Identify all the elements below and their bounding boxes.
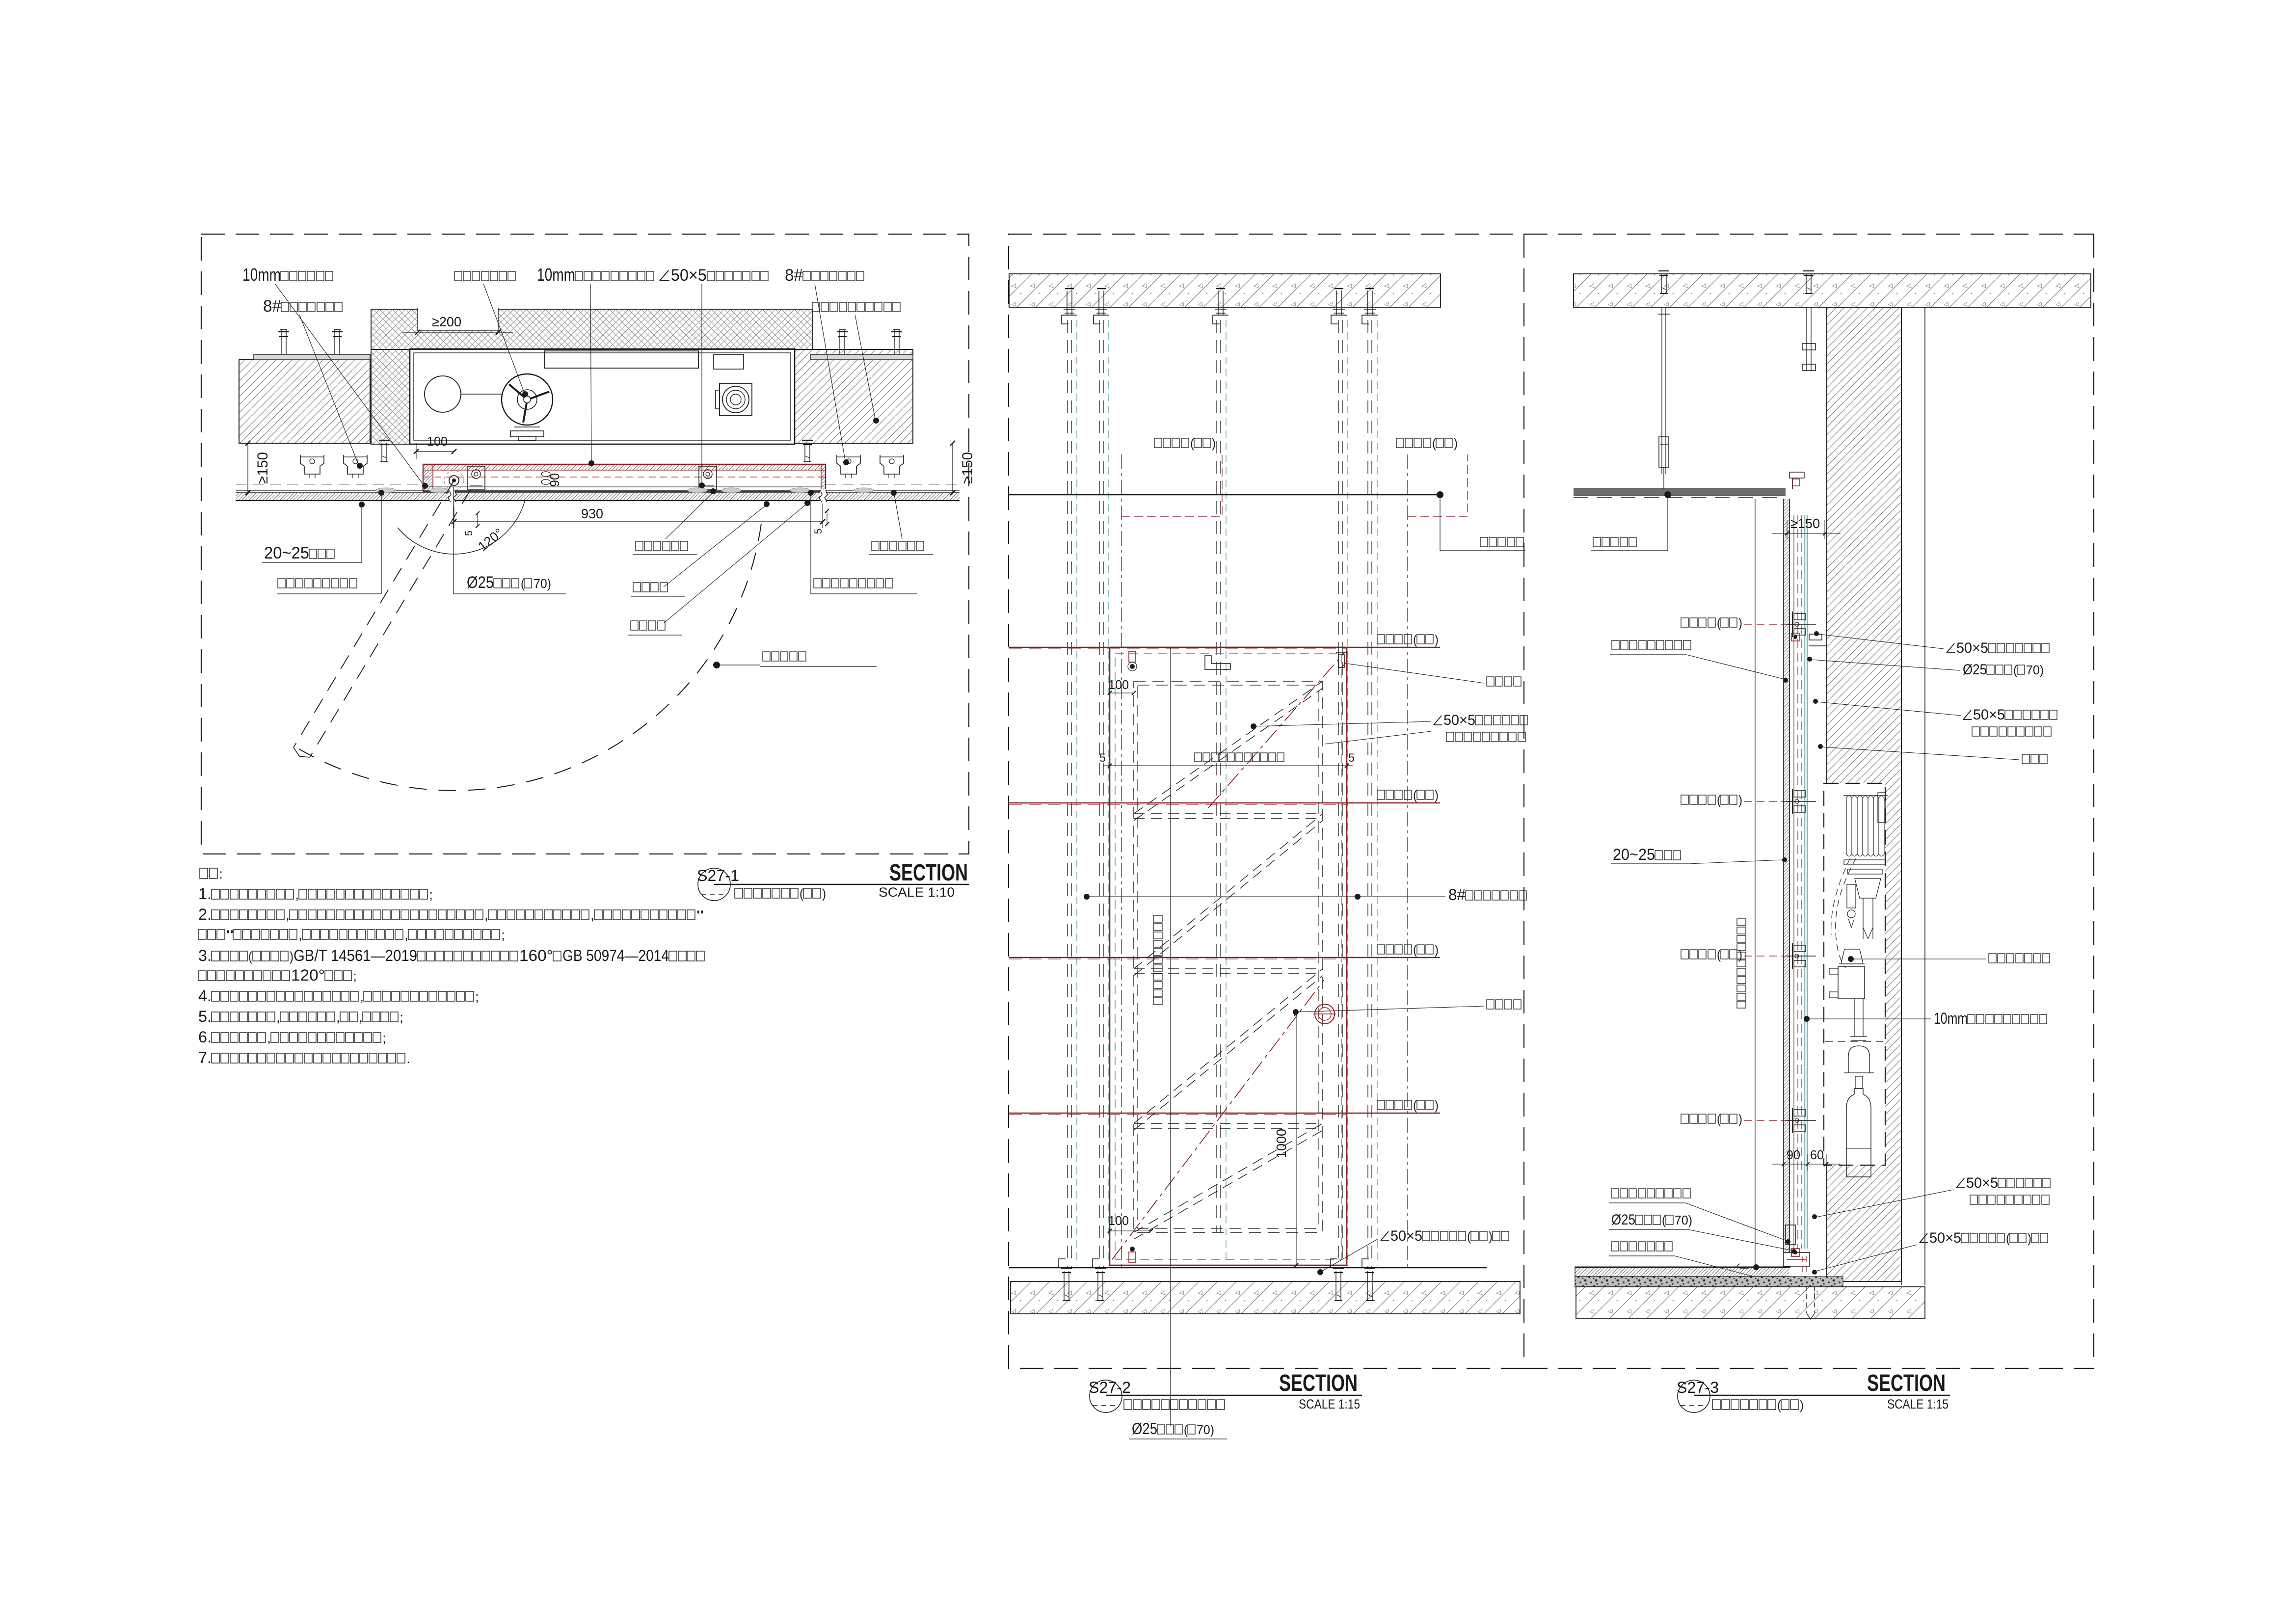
svg-text:;: ; [400,1010,403,1025]
svg-text:10mm: 10mm [1934,1010,1968,1027]
svg-text:): ) [1800,1398,1804,1412]
svg-text:7.: 7. [198,1049,212,1066]
svg-text:,: , [286,908,290,923]
svg-text:8#: 8# [1448,886,1466,904]
svg-text:;: ; [475,989,479,1004]
svg-text:1000: 1000 [1274,1129,1289,1158]
svg-text:70): 70) [2026,663,2044,677]
svg-text:5: 5 [813,529,824,534]
svg-text:,: , [360,989,364,1004]
svg-text:;: ; [353,969,357,984]
svg-text:(: ( [1184,1422,1188,1437]
svg-text:(: ( [1717,615,1721,630]
svg-text:50×5: 50×5 [1390,1228,1422,1244]
svg-text:20~25: 20~25 [264,544,309,562]
svg-text:,: , [484,908,488,923]
svg-text:): ) [290,949,294,964]
svg-text:SCALE 1:10: SCALE 1:10 [879,885,955,900]
svg-text:50×5: 50×5 [1973,707,2005,723]
svg-text:.: . [406,1051,410,1066]
svg-text:50×5: 50×5 [671,266,707,285]
svg-text:,: , [590,908,594,923]
svg-text:5: 5 [1099,751,1106,765]
svg-text:50×5: 50×5 [1956,640,1988,656]
svg-text:,: , [404,928,408,942]
svg-text:SECTION: SECTION [889,860,968,886]
svg-text:50×5: 50×5 [1966,1175,1998,1191]
svg-text:2.: 2. [198,905,212,923]
svg-text:Ø25: Ø25 [467,573,494,592]
svg-text:,: , [267,1031,271,1045]
svg-text:70): 70) [1675,1213,1692,1227]
svg-text:(: ( [2013,663,2017,677]
svg-text:GB 50974—2014: GB 50974—2014 [562,947,669,964]
svg-text:,: , [298,928,302,942]
svg-text:(: ( [1413,788,1417,802]
svg-text:SCALE 1:15: SCALE 1:15 [1887,1397,1949,1411]
svg-text:(: ( [1717,1112,1721,1126]
svg-text:;: ; [501,928,505,942]
svg-text:90: 90 [1787,1147,1800,1162]
svg-text:(: ( [1413,1098,1417,1113]
svg-text:): ) [1435,632,1439,647]
svg-text:): ) [2028,1231,2031,1246]
svg-text:100: 100 [427,434,448,449]
svg-text:1.: 1. [198,885,212,903]
svg-text:50×5: 50×5 [1443,712,1475,728]
svg-text:GB/T 14561—2019: GB/T 14561—2019 [294,947,417,964]
svg-text:,: , [295,887,299,902]
svg-text:(: ( [1413,632,1417,647]
svg-text:Ø25: Ø25 [1963,662,1987,678]
svg-text:): ) [1738,1112,1742,1126]
svg-text:S27-3: S27-3 [1677,1379,1719,1396]
svg-text:(: ( [1717,793,1721,807]
svg-text:5.: 5. [198,1008,212,1025]
svg-text:20~25: 20~25 [1613,846,1655,863]
svg-text:SCALE 1:15: SCALE 1:15 [1299,1397,1360,1411]
svg-text:(: ( [1717,947,1721,962]
svg-text:100: 100 [1108,677,1129,692]
svg-text:≥150: ≥150 [255,452,271,484]
svg-text:≥200: ≥200 [432,314,461,329]
svg-text:4.: 4. [198,987,212,1005]
svg-text:60: 60 [1810,1147,1824,1162]
svg-text:(: ( [1467,1229,1471,1244]
svg-text:8#: 8# [785,266,803,285]
svg-text:): ) [1435,788,1439,802]
svg-text:(: ( [2006,1231,2010,1246]
svg-text:8#: 8# [263,297,281,316]
svg-text:): ) [1454,436,1458,451]
svg-text:S27-1: S27-1 [697,867,739,884]
svg-text:;: ; [382,1031,386,1045]
svg-text:": " [226,928,234,942]
svg-text:(: ( [1413,942,1417,957]
svg-text:(: ( [1432,436,1436,451]
svg-text:6.: 6. [198,1028,212,1046]
svg-text:,: , [336,1010,340,1025]
svg-text:): ) [1435,1098,1439,1113]
svg-text:≥150: ≥150 [960,452,976,484]
svg-text:S27-2: S27-2 [1089,1379,1131,1396]
svg-text:): ) [1489,1229,1493,1244]
svg-text:≥150: ≥150 [1790,516,1820,531]
svg-text:(: ( [1190,436,1194,451]
svg-text:120°: 120° [291,966,325,984]
svg-text:): ) [1738,793,1742,807]
svg-text:(: ( [800,886,803,901]
svg-text:Ø25: Ø25 [1132,1420,1157,1438]
svg-text:(: ( [1662,1213,1666,1227]
svg-text:,: , [359,1010,363,1025]
svg-text:": " [696,908,704,923]
svg-text:): ) [1738,615,1742,630]
svg-text:5: 5 [463,531,475,536]
svg-text:): ) [1212,436,1216,451]
svg-text:10mm: 10mm [242,265,281,285]
svg-text:70): 70) [534,576,551,591]
svg-text:,: , [276,1010,280,1025]
svg-text:): ) [822,886,826,901]
svg-text:(: ( [1777,1398,1781,1412]
svg-text:(: ( [248,949,252,964]
svg-text:3.: 3. [198,947,212,964]
svg-text:SECTION: SECTION [1867,1370,1946,1396]
svg-text:50×5: 50×5 [1929,1230,1961,1246]
svg-text:70): 70) [1197,1422,1214,1437]
svg-text::: : [219,866,223,881]
svg-text:): ) [1435,942,1439,957]
svg-text:160°: 160° [519,947,553,964]
svg-text:Ø25: Ø25 [1611,1212,1635,1228]
svg-text:5: 5 [1348,751,1355,765]
svg-text:10mm: 10mm [537,265,575,285]
svg-text:100: 100 [1108,1213,1129,1228]
svg-text:SECTION: SECTION [1279,1370,1358,1396]
svg-text:;: ; [429,887,433,902]
svg-text:930: 930 [581,506,603,521]
